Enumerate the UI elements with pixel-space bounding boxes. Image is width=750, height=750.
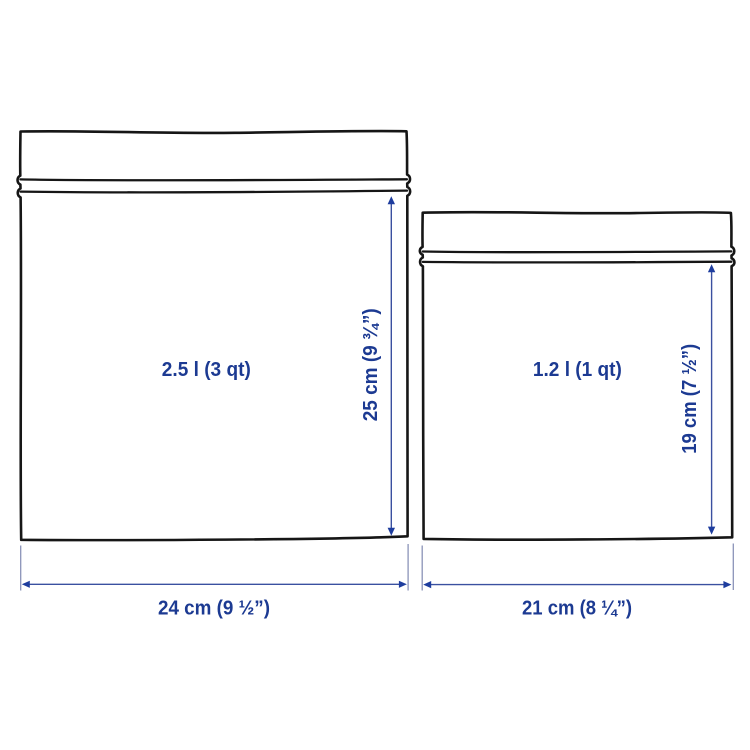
svg-text:21 cm (8 ¼”): 21 cm (8 ¼”) [522, 598, 632, 620]
svg-text:1.2 l (1 qt): 1.2 l (1 qt) [533, 359, 622, 381]
svg-text:24 cm (9 ½”): 24 cm (9 ½”) [158, 598, 270, 620]
svg-text:19 cm (7 ½”): 19 cm (7 ½”) [679, 344, 701, 454]
svg-text:25 cm (9 ¾”): 25 cm (9 ¾”) [360, 308, 382, 421]
svg-text:2.5 l (3 qt): 2.5 l (3 qt) [162, 359, 251, 381]
